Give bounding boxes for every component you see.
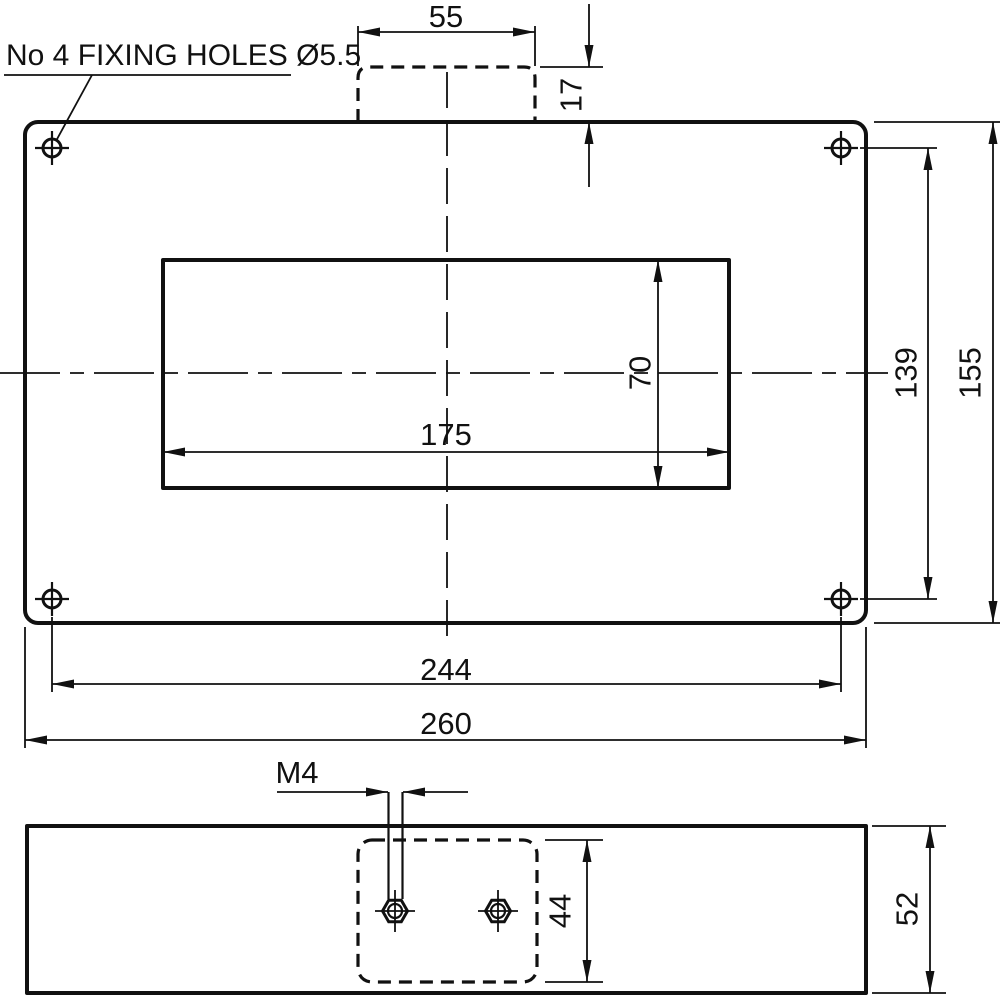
note-label: No 4 FIXING HOLES Ø5.5 <box>6 39 361 72</box>
dim-slot-width-label: 55 <box>429 0 463 34</box>
dimension-cutout-height-70: 70 <box>623 260 663 488</box>
dim-hole-pitch-vertical-label: 139 <box>889 347 924 399</box>
fixing-hole-bottom-left <box>35 582 69 616</box>
dim-hole-pitch-horizontal-label: 244 <box>420 652 472 687</box>
dim-thread-label: M4 <box>275 755 318 790</box>
hex-stud-left <box>375 890 415 932</box>
side-outline <box>27 826 866 993</box>
side-view <box>27 792 866 993</box>
fixing-hole-bottom-right <box>824 582 858 616</box>
dimension-slot-width-55: 55 <box>358 0 535 66</box>
dim-slot-depth-label: 17 <box>554 78 589 112</box>
dimension-overall-width-260: 260 <box>25 627 866 748</box>
dim-cutout-height-label: 70 <box>623 356 658 390</box>
fixing-hole-top-left <box>35 131 69 165</box>
dim-overall-width-label: 260 <box>420 706 472 741</box>
top-view <box>0 67 888 643</box>
dim-boss-height-label: 44 <box>543 894 578 928</box>
dim-overall-height-label: 155 <box>953 347 988 399</box>
dimension-thread-m4: M4 <box>275 755 468 797</box>
dimension-slot-depth-17: 17 <box>540 4 603 187</box>
hex-stud-right <box>478 890 518 932</box>
note-leader-line <box>56 75 92 141</box>
fixing-hole-top-right <box>824 131 858 165</box>
dimension-cutout-width-175: 175 <box>163 417 729 457</box>
technical-drawing-page: No 4 FIXING HOLES Ø5.5 55 17 70 175 <box>0 0 1000 1000</box>
dim-cutout-width-label: 175 <box>420 417 472 452</box>
dim-overall-depth-label: 52 <box>890 892 925 926</box>
engineering-drawing: No 4 FIXING HOLES Ø5.5 55 17 70 175 <box>0 0 1000 1000</box>
fixing-holes-note: No 4 FIXING HOLES Ø5.5 <box>4 39 361 141</box>
dimension-overall-depth-52: 52 <box>872 826 946 993</box>
dimension-boss-height-44: 44 <box>543 840 604 982</box>
